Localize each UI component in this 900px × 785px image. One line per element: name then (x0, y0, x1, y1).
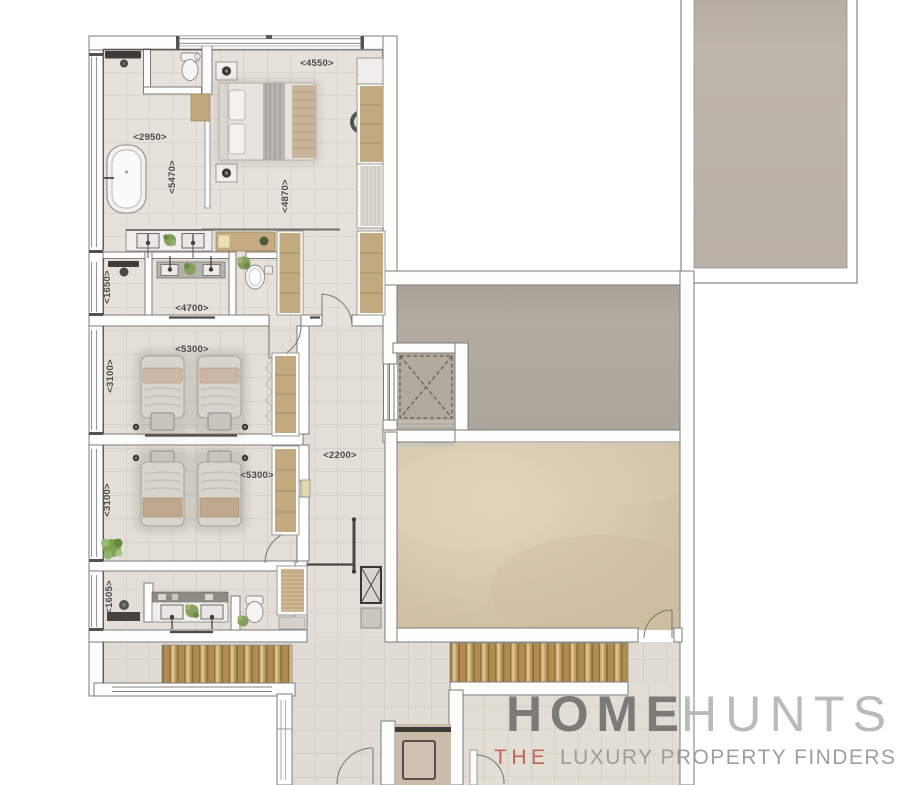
svg-text:<2950>: <2950> (133, 132, 167, 143)
svg-text:HUNTS: HUNTS (681, 686, 886, 742)
svg-text:<4870>: <4870> (280, 179, 291, 213)
svg-text:<4550>: <4550> (300, 58, 334, 69)
svg-text:<5300>: <5300> (175, 344, 209, 355)
svg-text:<1650>: <1650> (102, 270, 113, 304)
svg-text:<2200>: <2200> (323, 450, 357, 461)
svg-text:<5470>: <5470> (167, 160, 178, 194)
svg-text:<1605>: <1605> (104, 580, 115, 614)
svg-text:LUXURY PROPERTY FINDERS: LUXURY PROPERTY FINDERS (560, 746, 895, 769)
svg-text:<3100>: <3100> (102, 483, 113, 517)
svg-text:THE: THE (494, 746, 545, 769)
svg-text:<4700>: <4700> (175, 303, 209, 314)
svg-text:<5300>: <5300> (240, 470, 274, 481)
svg-text:<3100>: <3100> (105, 359, 116, 393)
